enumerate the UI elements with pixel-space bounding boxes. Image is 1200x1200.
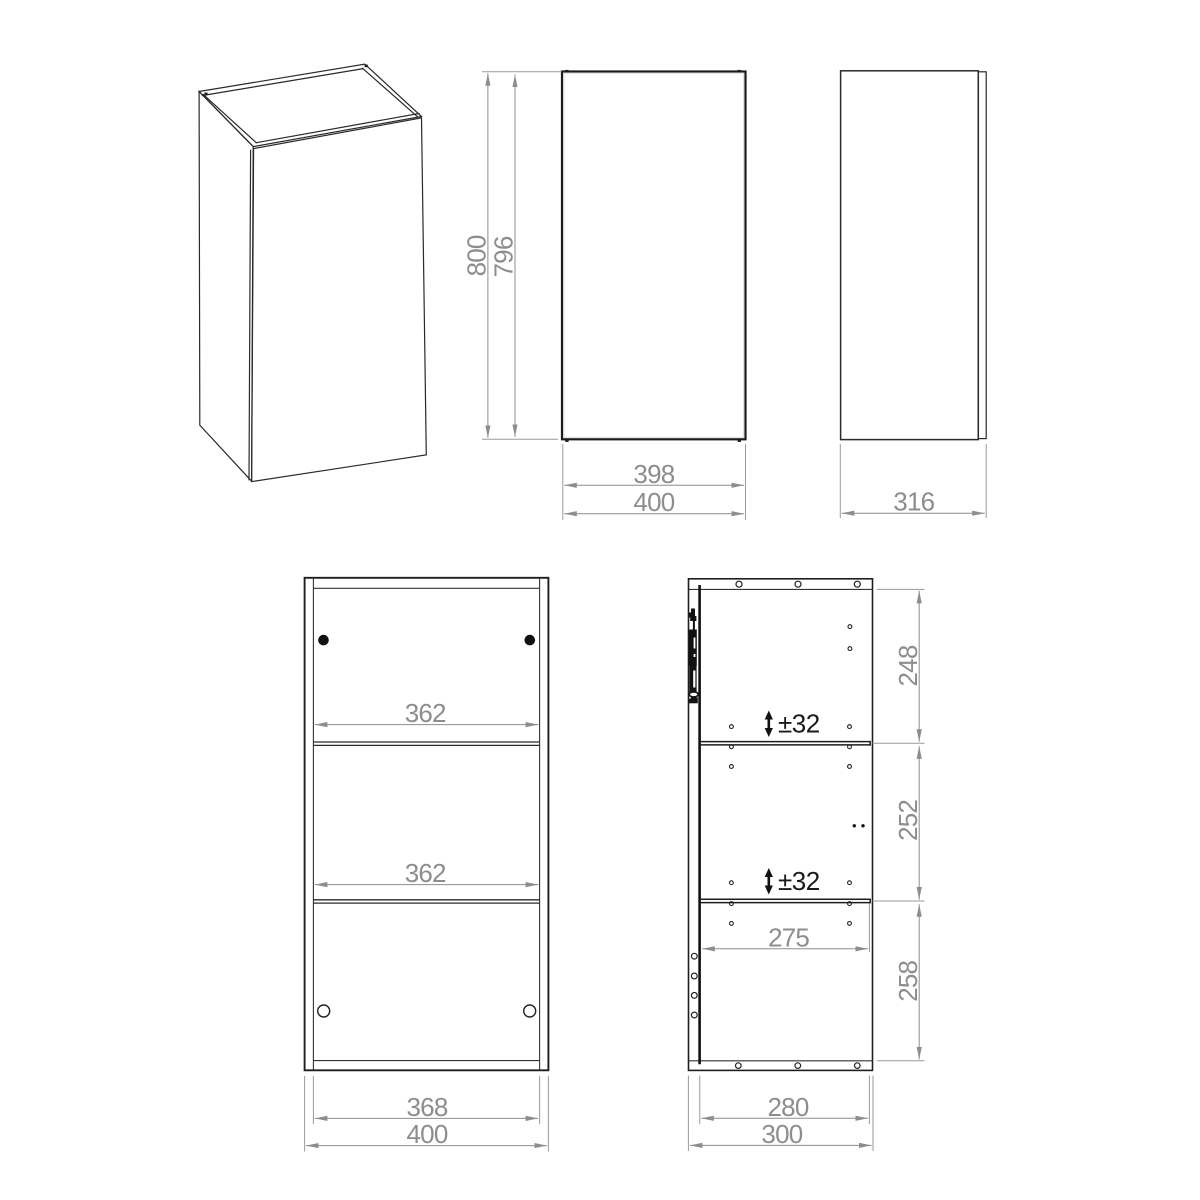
svg-text:400: 400 (633, 487, 674, 517)
svg-text:400: 400 (407, 1119, 448, 1149)
svg-text:±32: ±32 (778, 866, 820, 896)
svg-text:398: 398 (633, 459, 674, 489)
svg-text:300: 300 (761, 1119, 802, 1149)
svg-text:252: 252 (893, 800, 923, 841)
svg-text:316: 316 (893, 487, 934, 517)
svg-text:248: 248 (893, 645, 923, 686)
svg-text:362: 362 (405, 858, 446, 888)
svg-text:±32: ±32 (778, 709, 820, 739)
svg-text:280: 280 (768, 1092, 809, 1122)
svg-text:275: 275 (768, 922, 809, 952)
svg-text:800: 800 (462, 235, 492, 276)
svg-text:796: 796 (489, 236, 519, 277)
svg-text:368: 368 (407, 1092, 448, 1122)
svg-text:362: 362 (405, 698, 446, 728)
svg-text:258: 258 (893, 960, 923, 1001)
